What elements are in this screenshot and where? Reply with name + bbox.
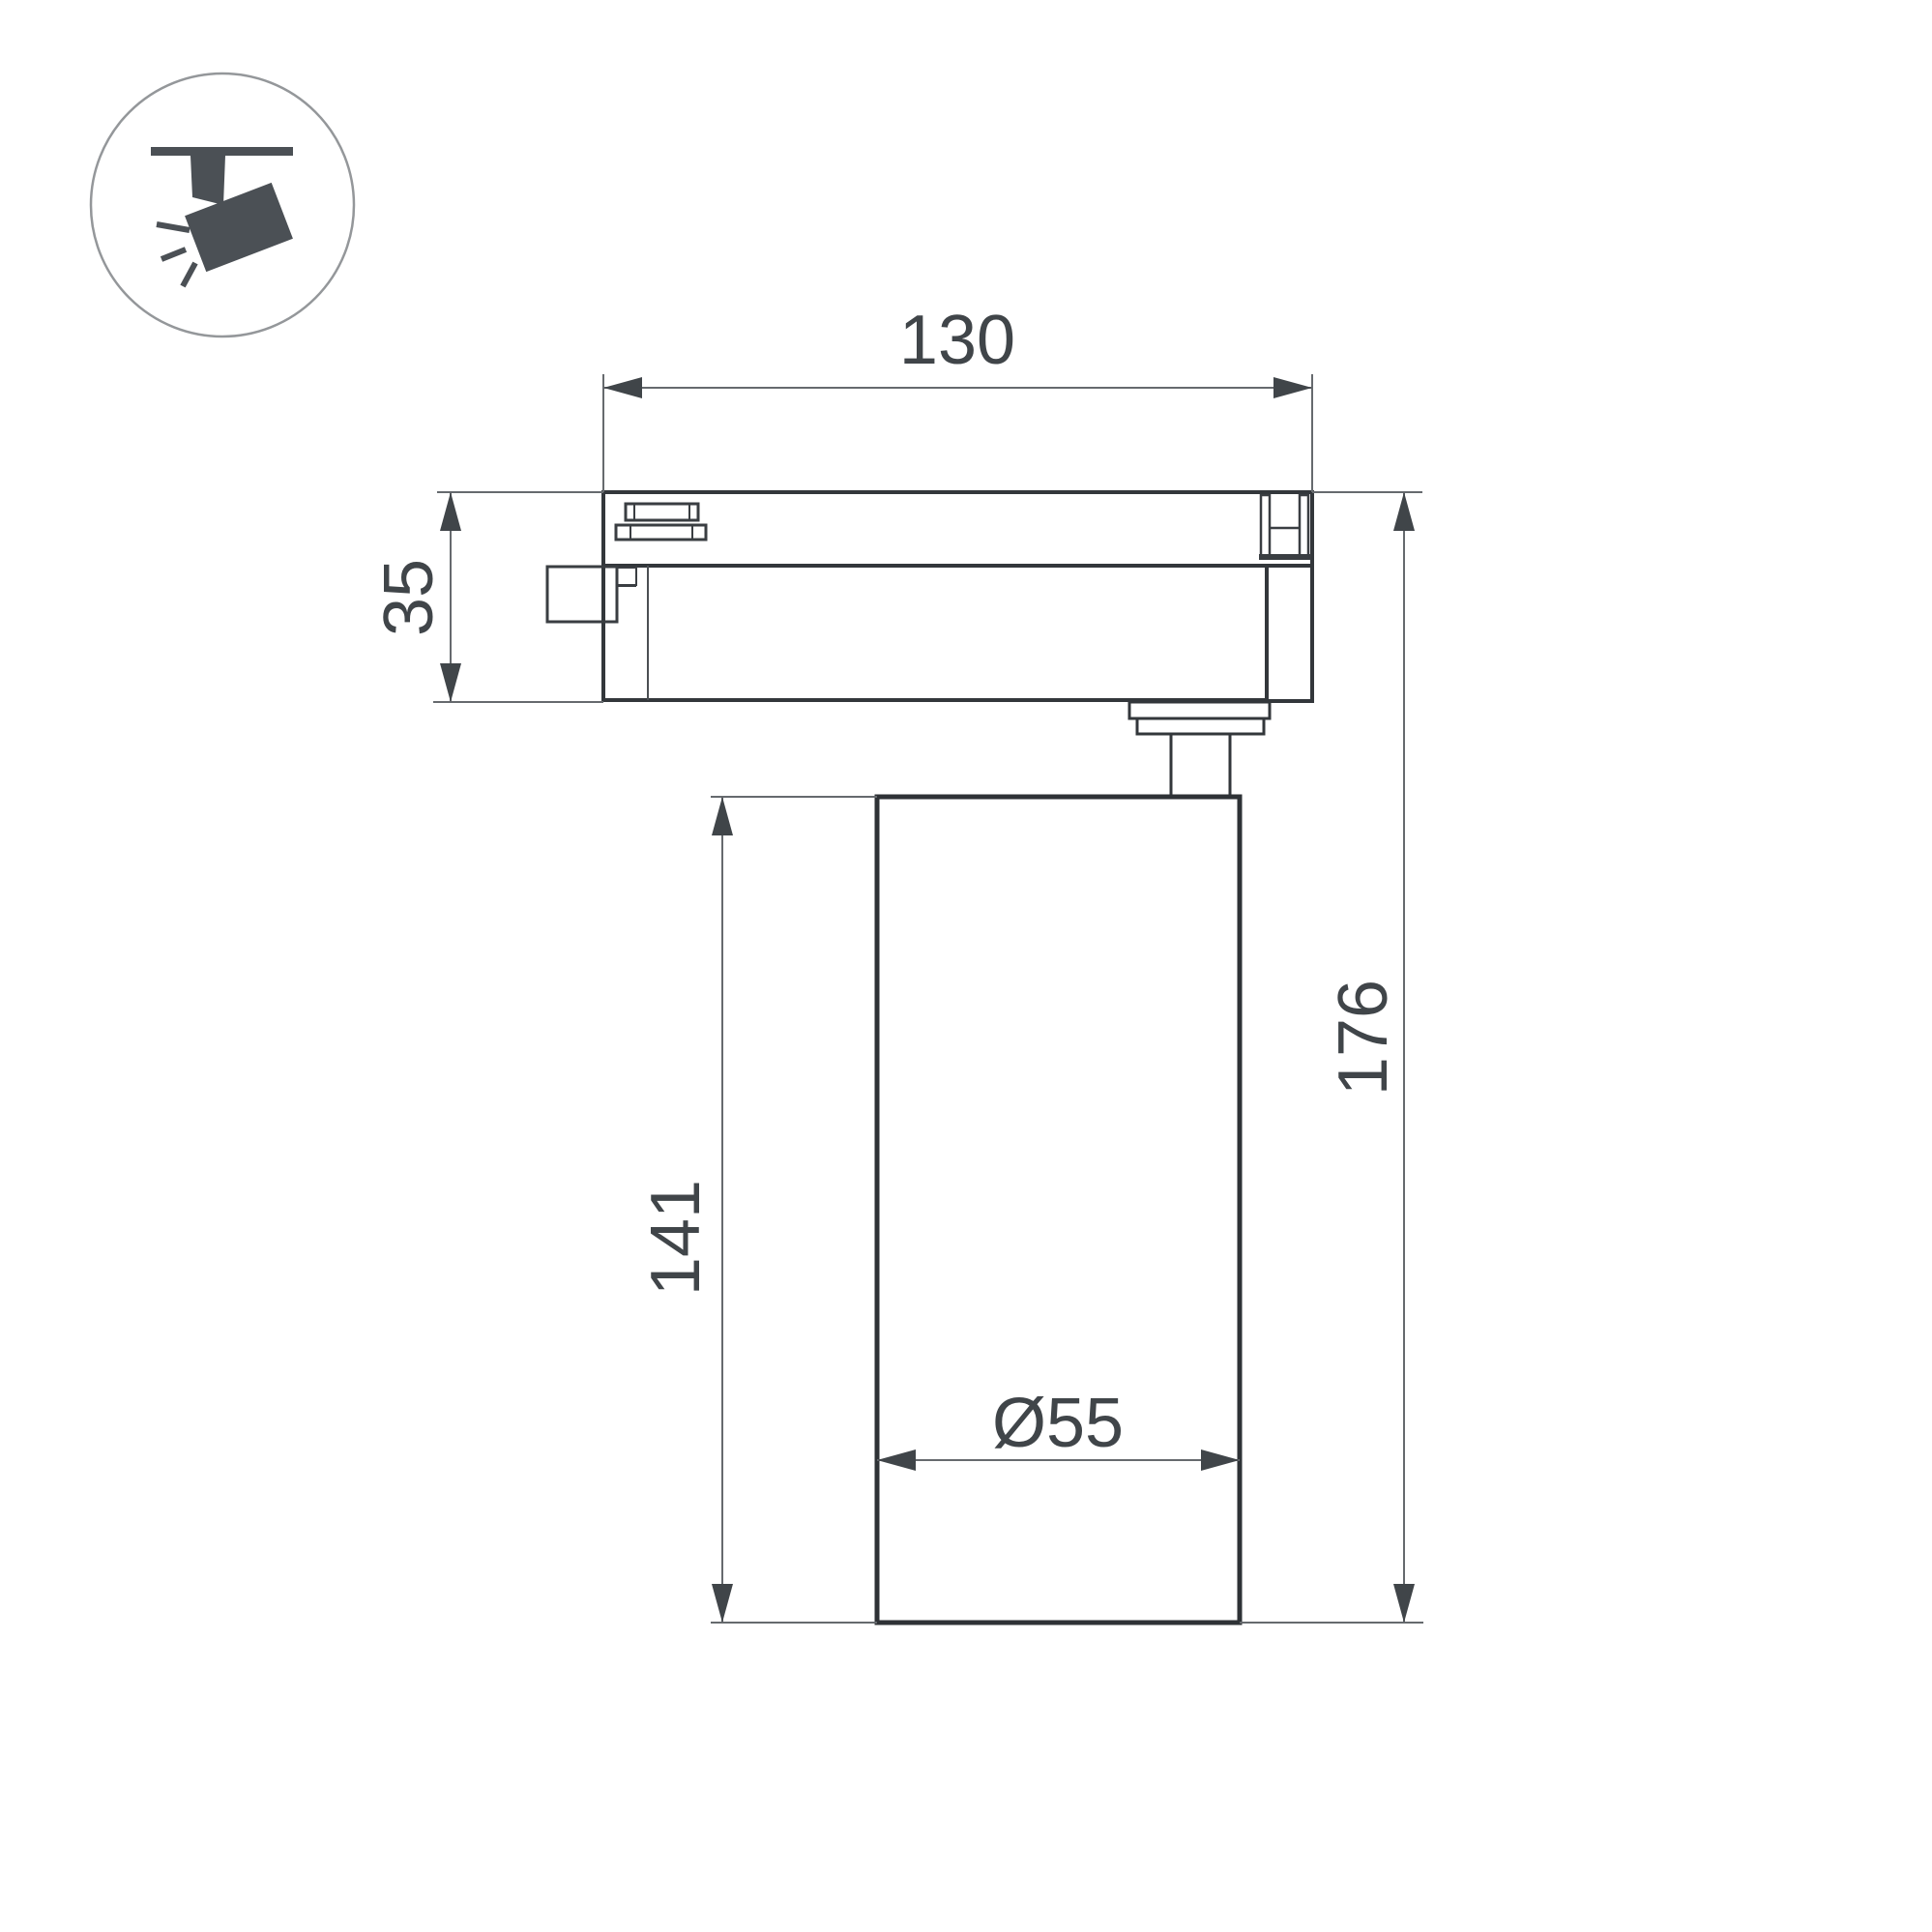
arrowhead-right: [1273, 377, 1312, 398]
dimension-label-130: 130: [899, 302, 1015, 379]
icon-ceiling-bar: [151, 147, 293, 156]
mount-plate-upper: [1129, 702, 1270, 718]
adapter-left-clips: [616, 504, 706, 540]
track-adapter-top-strip: [603, 492, 1312, 566]
adapter-right-column: [1267, 566, 1312, 701]
arrowhead-up: [1393, 492, 1415, 531]
arrowhead-down: [1393, 1584, 1415, 1623]
dimension-adapter-height: 35: [370, 492, 603, 702]
arrowhead-down: [712, 1584, 733, 1623]
lamp-housing: [877, 797, 1240, 1623]
track-spotlight-icon: [91, 73, 354, 337]
dimension-label-diameter: Ø55: [992, 1385, 1124, 1462]
mount-stem: [1171, 734, 1230, 798]
arrowhead-up: [440, 492, 461, 531]
track-adapter-body: [603, 566, 1267, 700]
fixture-drawing: [547, 492, 1312, 1623]
dimension-label-35: 35: [370, 559, 448, 636]
arrowhead-left: [603, 377, 642, 398]
mount-plate-lower: [1137, 718, 1264, 734]
dimension-body-height: 141: [637, 797, 877, 1623]
dimension-label-176: 176: [1325, 980, 1402, 1096]
icon-track-stem: [190, 156, 225, 205]
dimension-label-141: 141: [637, 1180, 715, 1296]
arrowhead-up: [712, 797, 733, 835]
dimension-track-width: 130: [603, 302, 1312, 492]
arrowhead-down: [440, 663, 461, 702]
technical-drawing-page: 130 35 141: [0, 0, 1932, 1932]
